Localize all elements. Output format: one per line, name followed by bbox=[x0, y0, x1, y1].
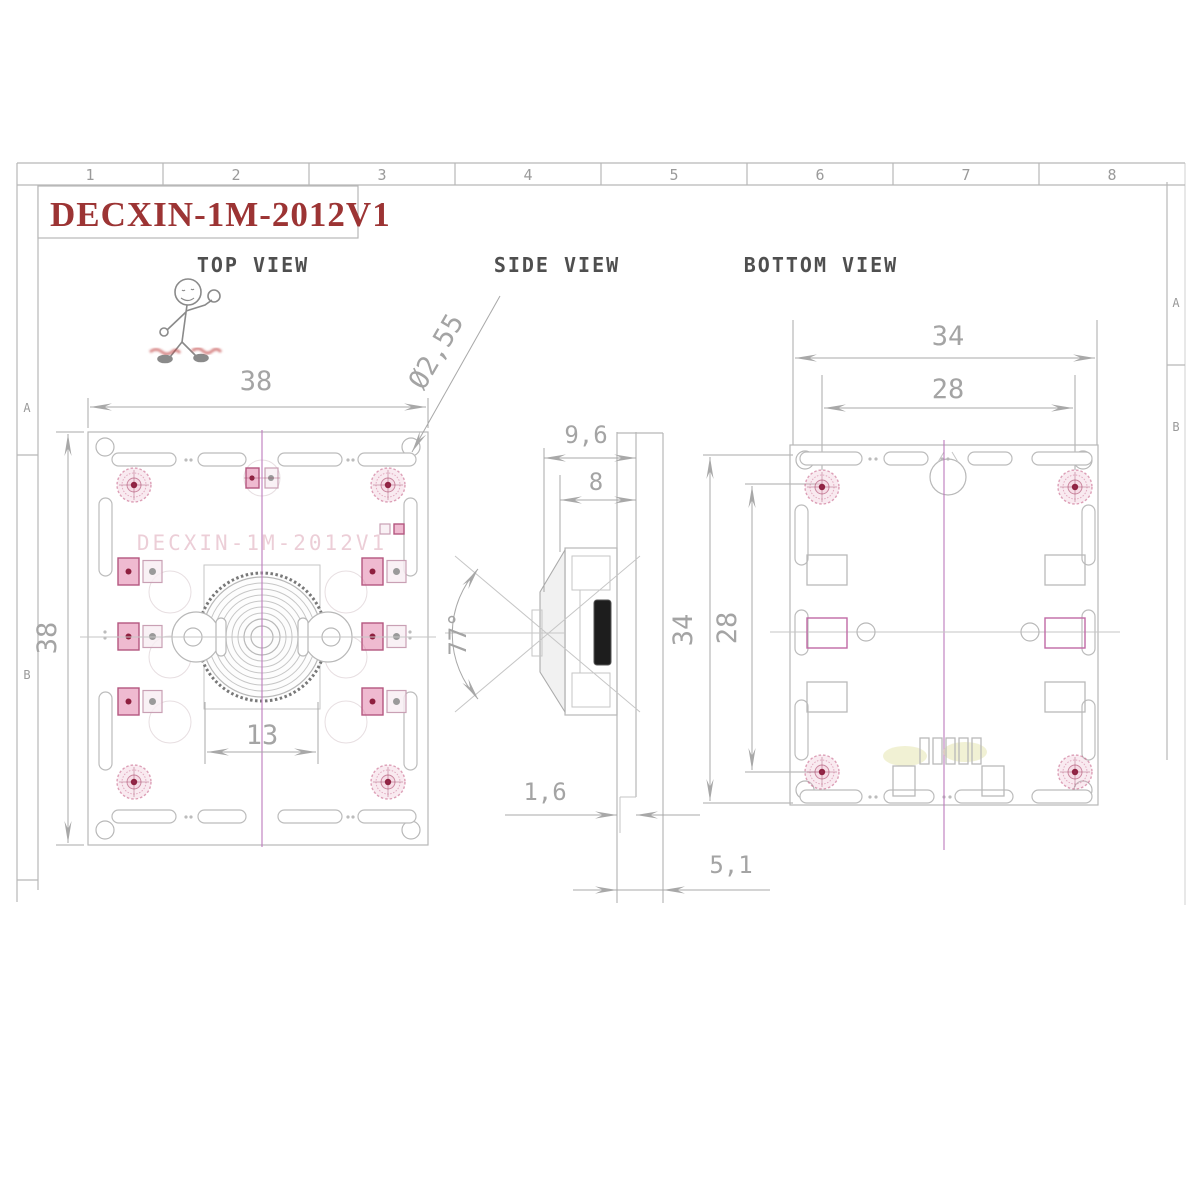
dim-bottom-width-value: 34 bbox=[932, 321, 965, 352]
dim-lens-depth-value: 8 bbox=[589, 468, 603, 496]
dim-top-height-value: 38 bbox=[32, 622, 63, 655]
column-label-3: 3 bbox=[377, 166, 386, 184]
mount-hole-pad bbox=[805, 755, 839, 789]
image-sensor bbox=[594, 600, 611, 665]
engineering-drawing: 1 2 3 4 5 6 7 8 A B A B DECXIN-1M-2012V1… bbox=[0, 0, 1200, 1200]
column-label-1: 1 bbox=[85, 166, 94, 184]
dim-top-height: 38 bbox=[32, 432, 84, 845]
mount-hole-pad bbox=[117, 468, 151, 502]
mount-hole-pad bbox=[117, 765, 151, 799]
mount-hole-pad bbox=[1058, 470, 1092, 504]
bottom-view: 34 28 bbox=[770, 320, 1120, 850]
column-label-2: 2 bbox=[231, 166, 240, 184]
drawing-page: 1 2 3 4 5 6 7 8 A B A B DECXIN-1M-2012V1… bbox=[0, 0, 1200, 1200]
dim-back-height-value: 5,1 bbox=[709, 851, 752, 879]
dim-pcb-thickness: 1,6 bbox=[505, 778, 700, 819]
column-label-8: 8 bbox=[1107, 166, 1116, 184]
side-view: 77° 9,6 8 1,6 5,1 bbox=[444, 421, 770, 903]
leader-mount-hole: Ø2,55 bbox=[403, 296, 500, 454]
dim-bottom-hole-pitch-h-value: 28 bbox=[932, 374, 965, 405]
dim-fov-value: 77° bbox=[444, 612, 472, 655]
column-label-6: 6 bbox=[815, 166, 824, 184]
dim-top-width: 38 bbox=[88, 366, 428, 428]
lens-center-hole bbox=[930, 459, 966, 495]
zone-right-a: A bbox=[1172, 296, 1180, 310]
dim-bottom-height-value: 34 bbox=[668, 614, 699, 647]
zone-right-b: B bbox=[1172, 420, 1179, 434]
smd-pad-pair bbox=[118, 558, 162, 585]
mount-hole-pad bbox=[371, 468, 405, 502]
top-view-title: TOP VIEW bbox=[197, 253, 309, 277]
dim-mount-hole-value: Ø2,55 bbox=[403, 309, 470, 395]
dim-lens-barrel-value: 13 bbox=[246, 720, 279, 751]
smd-pad-pair bbox=[118, 688, 162, 715]
column-label-7: 7 bbox=[961, 166, 970, 184]
bottom-view-title: BOTTOM VIEW bbox=[744, 253, 898, 277]
dim-pcb-thickness-value: 1,6 bbox=[523, 778, 566, 806]
zone-left-a: A bbox=[23, 401, 31, 415]
logo-caption-illegible bbox=[150, 349, 221, 355]
mount-hole-pad bbox=[1058, 755, 1092, 789]
smd-pad-pair bbox=[362, 558, 406, 585]
dim-back-height: 5,1 bbox=[573, 851, 770, 894]
dim-top-width-value: 38 bbox=[240, 366, 273, 397]
mount-hole-pad bbox=[805, 470, 839, 504]
dim-lens-total-depth-value: 9,6 bbox=[564, 421, 607, 449]
zone-left-b: B bbox=[23, 668, 30, 682]
column-label-4: 4 bbox=[523, 166, 532, 184]
dim-bottom-hole-pitch-v-value: 28 bbox=[712, 612, 743, 645]
side-view-title: SIDE VIEW bbox=[494, 253, 620, 277]
column-label-5: 5 bbox=[669, 166, 678, 184]
part-number: DECXIN-1M-2012V1 bbox=[50, 195, 391, 234]
logo-stick-figure bbox=[150, 279, 221, 363]
mount-hole-pad bbox=[371, 765, 405, 799]
top-view: DECXIN-1M-2012V1 bbox=[32, 296, 500, 847]
smd-pad-pair bbox=[362, 688, 406, 715]
title-block: DECXIN-1M-2012V1 bbox=[38, 186, 391, 238]
dim-lens-depth: 8 bbox=[560, 468, 636, 552]
